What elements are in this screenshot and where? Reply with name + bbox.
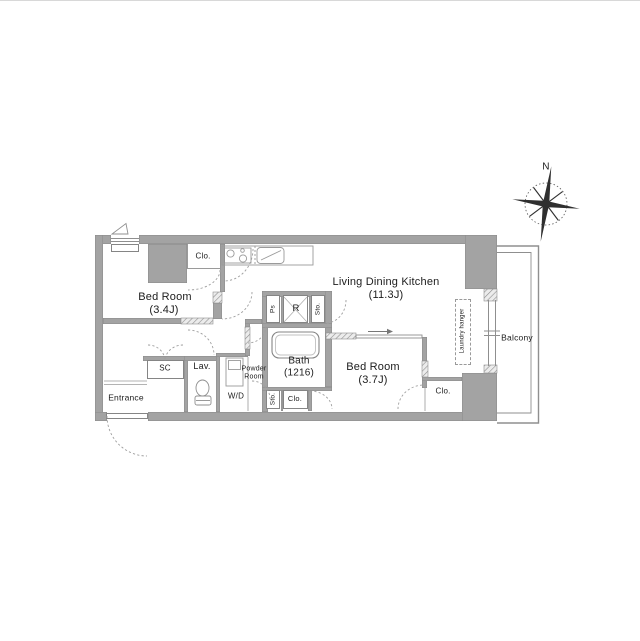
bedroom1-size: (3.4J)	[149, 304, 178, 316]
ldk-size: (11.3J)	[369, 289, 404, 301]
compass-icon	[507, 162, 585, 247]
bedroom1-name: Bed Room	[138, 291, 192, 303]
bath-name: Bath	[288, 356, 309, 367]
bathtub-icon	[272, 332, 319, 358]
balcony-window	[484, 300, 500, 366]
window-awning-icon	[112, 224, 128, 235]
pipe-space-label: Ps	[269, 305, 276, 313]
closet2-label: Clo.	[435, 388, 450, 397]
slide-arrow-icon	[387, 329, 393, 334]
closet3-label: Clo.	[288, 395, 302, 403]
closet1-label: Clo.	[195, 253, 210, 262]
toilet-icon	[195, 380, 211, 405]
powder-room-label: Powder Room	[238, 365, 270, 380]
refrigerator-label: R	[292, 304, 299, 314]
laundry-hanger-label: Laundry hanger	[460, 309, 467, 354]
entrance-label: Entrance	[108, 393, 144, 402]
lavatory-label: Lav.	[193, 362, 210, 372]
bedroom2-name: Bed Room	[346, 361, 400, 373]
stove-burner-icon	[239, 255, 246, 262]
kitchen-counter	[222, 246, 313, 265]
storage-bottom-label: Sto.	[269, 393, 276, 405]
bedroom2-size: (3.7J)	[358, 374, 387, 386]
ldk-name: Living Dining Kitchen	[333, 276, 440, 288]
shoe-closet-label: SC	[159, 365, 171, 374]
storage-top-label: Sto.	[314, 303, 321, 315]
balcony-label: Balcony	[501, 333, 533, 342]
compass-north-label: N	[542, 162, 549, 173]
bath-size: (1216)	[284, 368, 314, 379]
floorplan-linework	[0, 1, 640, 641]
entrance-door-arc	[107, 416, 147, 456]
wd-label: W/D	[228, 393, 244, 402]
stove-burner-small-icon	[241, 249, 245, 253]
stove-burner-icon	[227, 250, 234, 257]
bedroom1-window	[111, 224, 139, 242]
bedroom2-partition	[356, 329, 422, 338]
floorplan-canvas: N Living Dining Kitchen (11.3J) Bed Room…	[0, 0, 640, 641]
